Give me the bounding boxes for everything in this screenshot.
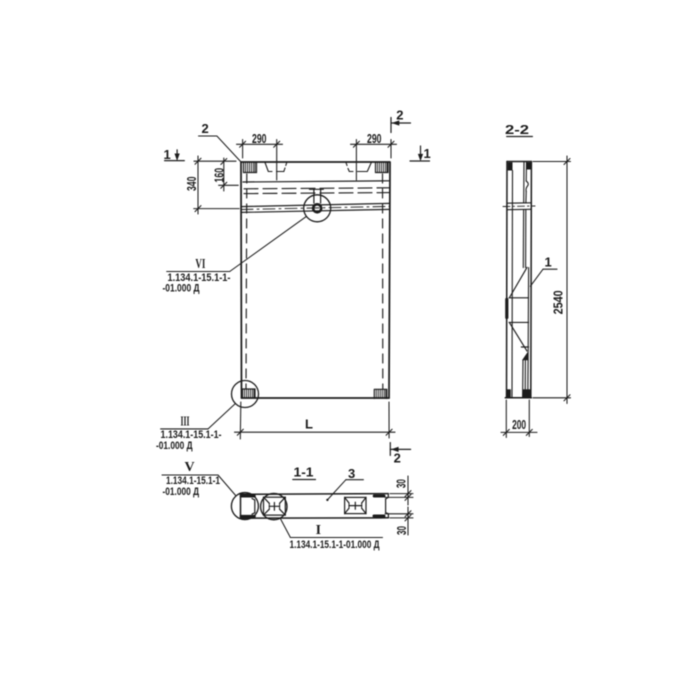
svg-text:160: 160 (211, 168, 226, 183)
svg-text:1: 1 (424, 146, 431, 161)
svg-text:340: 340 (184, 177, 199, 192)
svg-text:VI: VI (195, 257, 205, 272)
svg-text:1: 1 (545, 255, 552, 270)
svg-text:V: V (185, 460, 195, 475)
svg-text:30: 30 (393, 479, 408, 488)
svg-text:III: III (181, 415, 190, 430)
svg-text:2540: 2540 (551, 290, 566, 314)
svg-text:290: 290 (367, 131, 382, 146)
svg-text:1: 1 (164, 147, 171, 162)
svg-text:30: 30 (394, 526, 409, 535)
svg-text:200: 200 (512, 417, 526, 432)
svg-text:2: 2 (396, 108, 403, 123)
svg-text:1.134.1-15.1-1-01.000 Д: 1.134.1-15.1-1-01.000 Д (290, 539, 380, 551)
svg-text:-01.000 Д: -01.000 Д (163, 283, 200, 295)
svg-text:-01.000 Д: -01.000 Д (163, 486, 200, 498)
svg-text:2: 2 (394, 451, 401, 466)
svg-text:L: L (305, 417, 313, 432)
svg-text:1-1: 1-1 (294, 465, 314, 480)
svg-text:1.134.1-15.1-1-: 1.134.1-15.1-1- (161, 429, 222, 441)
svg-text:-01.000 Д: -01.000 Д (156, 440, 193, 452)
svg-text:2-2: 2-2 (505, 122, 529, 137)
svg-text:I: I (316, 523, 321, 538)
svg-text:2: 2 (202, 121, 209, 136)
svg-text:290: 290 (252, 131, 267, 146)
svg-text:3: 3 (348, 466, 355, 481)
